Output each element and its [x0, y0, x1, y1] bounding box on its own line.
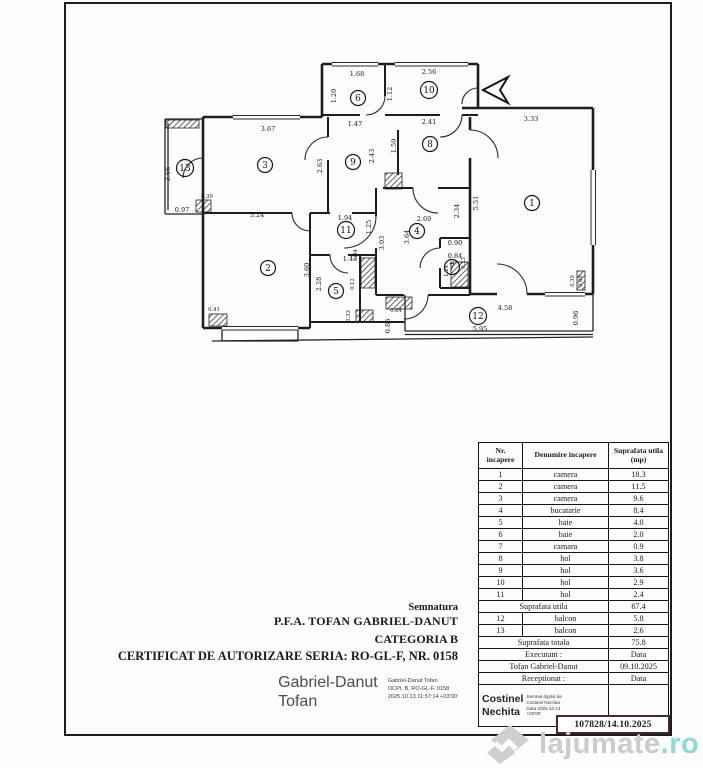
table-row: 5baie4.0 [479, 517, 669, 529]
subtotal-label: Suprafata utila [479, 601, 609, 613]
receiver-name: Costinel Nechita [482, 693, 523, 717]
col-header-denumire: Denumire incapere [523, 443, 609, 469]
cell-area: 8.4 [609, 505, 669, 517]
dimension-label: 0.97 [175, 206, 189, 214]
dimension-label: 3.33 [524, 115, 538, 123]
cell-name: hol [523, 553, 609, 565]
table-row: 2camera11.5 [479, 481, 669, 493]
room-number-label: 8 [427, 140, 433, 150]
room-number-label: 13 [179, 164, 191, 174]
executant-date: 09.10.2025 [609, 661, 669, 673]
digital-signature: Gabriel-Danut Tofan Gabriel-Danut Tofan … [78, 673, 458, 711]
dimension-label: 0.39 [570, 274, 576, 286]
room-number-label: 7 [449, 263, 455, 273]
cell-nr: 11 [479, 589, 523, 601]
cell-nr: 1 [479, 469, 523, 481]
stamp-detail-line: 2025.10.13 11:57:14 +03'00' [388, 693, 458, 701]
room-number-label: 6 [355, 94, 361, 104]
cell-area: 4.0 [609, 517, 669, 529]
dimension-label: 1.25 [365, 220, 373, 234]
dimension-label: 5.51 [472, 196, 480, 210]
room-number-label: 2 [265, 264, 271, 274]
dimension-label: 0.41 [208, 307, 220, 313]
dimension-label: 0.64 [390, 308, 402, 314]
dimension-label: 0.12 [350, 278, 356, 290]
cell-name: camera [523, 469, 609, 481]
col-header-suprafata: Suprafata utila (mp) [609, 443, 669, 469]
table-row: 3camera9.6 [479, 493, 669, 505]
table-row: 4bucatarie8.4 [479, 505, 669, 517]
stamp-detail-line: Gabriel-Danut Tofan [388, 677, 458, 685]
dimension-label: 0.86 [384, 319, 392, 333]
dimension-label: 1.12 [386, 87, 394, 101]
dimension-label: 1.24 [444, 264, 450, 276]
total-value: 75.8 [609, 637, 669, 649]
receptionat-data-label: Data [609, 673, 669, 685]
cell-name: baie [523, 529, 609, 541]
cell-nr: 3 [479, 493, 523, 505]
dimension-label: 1.20 [330, 89, 338, 103]
receiver-name-line1: Costinel [482, 693, 523, 705]
dimension-label: 3.64 [403, 230, 411, 244]
dimension-label: 2.34 [453, 204, 461, 218]
watermark-text: lajumate.ro [539, 730, 699, 759]
dimension-label: 2.66 [164, 167, 172, 181]
signer-name-line1: Gabriel-Danut [278, 673, 378, 692]
signer-name: Gabriel-Danut Tofan [278, 673, 378, 711]
cell-area: 2.0 [609, 529, 669, 541]
table-row: 12balcon5.8 [479, 613, 669, 625]
executant-row: Executant :Data [479, 649, 669, 661]
cell-area: 2.4 [609, 589, 669, 601]
col-header-suprafata-line2: (mp) [610, 456, 667, 465]
total-label: Suprafata totala [479, 637, 609, 649]
cell-nr: 13 [479, 625, 523, 637]
table-row: 11hol2.4 [479, 589, 669, 601]
executant-label: Executant : [479, 649, 609, 661]
dimension-label: 1.94 [338, 214, 352, 222]
cell-area: 0.9 [609, 541, 669, 553]
cell-nr: 8 [479, 553, 523, 565]
signature-label: Semnatura [78, 601, 458, 614]
cell-nr: 5 [479, 517, 523, 529]
cell-nr: 9 [479, 565, 523, 577]
dimension-label: 1.59 [390, 139, 398, 153]
dimension-label: 5.95 [473, 325, 487, 333]
executant-name: Tofan Gabriel-Danut [479, 661, 609, 673]
table-row: 6baie2.0 [479, 529, 669, 541]
cell-name: bucatarie [523, 505, 609, 517]
area-table: Nr. incapere Denumire incapere Suprafata… [478, 442, 669, 727]
cell-nr: 2 [479, 481, 523, 493]
dimension-label: 0.39 [201, 194, 213, 200]
cell-area: 9.6 [609, 493, 669, 505]
table-row: 1camera18.3 [479, 469, 669, 481]
room-number-label: 4 [414, 227, 420, 237]
executant-data-label: Data [609, 649, 669, 661]
cell-area: 5.8 [609, 613, 669, 625]
certificate-block: Semnatura P.F.A. TOFAN GABRIEL-DANUT CAT… [78, 601, 458, 711]
receptionat-label: Receptionat : [479, 673, 609, 685]
dimension-label: 1.47 [348, 120, 362, 128]
dimension-label: 0.23 [461, 257, 467, 269]
scanned-floorplan-page: 12345678910111213 1.682.561.201.122.411.… [0, 0, 703, 768]
lajumate-logo-icon [487, 723, 533, 765]
subtotal-value: 67.4 [609, 601, 669, 613]
room-number-label: 12 [472, 312, 483, 322]
cell-name: camera [523, 493, 609, 505]
cell-nr: 6 [479, 529, 523, 541]
dimension-label: 1.68 [350, 70, 364, 78]
receiver-stamp: Costinel Nechita Semnat digital de Costi… [480, 693, 607, 717]
total-row: Suprafata totala75.8 [479, 637, 669, 649]
subtotal-row: Suprafata utila67.4 [479, 601, 669, 613]
table-row: 9hol3.6 [479, 565, 669, 577]
certificate-number: CERTIFICAT DE AUTORIZARE SERIA: RO-GL-F,… [78, 649, 458, 665]
cell-area: 2.6 [609, 625, 669, 637]
dimension-label: 0.64 [353, 248, 359, 260]
col-header-nr-line2: incapere [480, 456, 521, 465]
dimension-label: 3.03 [378, 236, 386, 250]
signer-name-line2: Tofan [278, 692, 378, 711]
table-row: 7camara0.9 [479, 541, 669, 553]
dimension-label: 0.08 [578, 274, 584, 286]
table-row: 8hol3.8 [479, 553, 669, 565]
receiver-stamp-line: Costinel Nechita [526, 700, 562, 706]
cell-name: hol [523, 589, 609, 601]
cell-name: baie [523, 517, 609, 529]
cell-area: 3.8 [609, 553, 669, 565]
table-header-row: Nr. incapere Denumire incapere Suprafata… [479, 443, 669, 469]
room-number-label: 5 [333, 287, 339, 297]
cell-name: balcon [523, 625, 609, 637]
dimension-label: 2.41 [422, 118, 436, 126]
cell-name: hol [523, 565, 609, 577]
receptionat-row: Receptionat :Data [479, 673, 669, 685]
dimension-label: 3.67 [261, 125, 275, 133]
watermark-brand: lajumate [539, 728, 661, 760]
dimension-label: 3.24 [250, 211, 264, 219]
cell-nr: 10 [479, 577, 523, 589]
receiver-name-line2: Nechita [482, 706, 523, 718]
cell-nr: 4 [479, 505, 523, 517]
dimension-label: 3.60 [303, 263, 311, 277]
room-number-label: 3 [262, 161, 268, 171]
dimension-label: 0.96 [572, 311, 580, 325]
col-header-nr: Nr. incapere [479, 443, 523, 469]
room-number-label: 11 [340, 226, 351, 236]
windows [222, 63, 596, 331]
north-arrow-icon [483, 77, 508, 103]
authority-name: P.F.A. TOFAN GABRIEL-DANUT [78, 614, 458, 629]
dimension-label: 2.28 [315, 277, 323, 291]
dimension-label: 2.56 [422, 68, 436, 76]
receiver-stamp-details: Semnat digital de Costinel Nechita Data … [526, 694, 562, 718]
cell-area: 18.3 [609, 469, 669, 481]
dimension-label: 0.90 [448, 239, 462, 247]
cell-nr: 7 [479, 541, 523, 553]
watermark: lajumate.ro [487, 723, 699, 765]
table-row: 13balcon2.6 [479, 625, 669, 637]
receiver-stamp-line: Semnat digital de [526, 694, 562, 700]
table-row: 10hol2.9 [479, 577, 669, 589]
balcony-walls [165, 119, 593, 341]
room-number-label: 10 [423, 86, 435, 96]
cell-area: 2.9 [609, 577, 669, 589]
executant-name-row: Tofan Gabriel-Danut09.10.2025 [479, 661, 669, 673]
room-number-label: 1 [529, 199, 535, 209]
stamp-detail-line: OCPI, B, RO-GL-F, 0158 [388, 685, 458, 693]
cell-name: camera [523, 481, 609, 493]
signature-stamp-details: Gabriel-Danut Tofan OCPI, B, RO-GL-F, 01… [388, 673, 458, 701]
cell-nr: 12 [479, 613, 523, 625]
dimension-label: 2.69 [417, 215, 431, 223]
cell-area: 3.6 [609, 565, 669, 577]
dimension-label: 4.58 [498, 304, 512, 312]
watermark-tld: .ro [661, 728, 700, 760]
cell-name: camara [523, 541, 609, 553]
dimension-label: 2.43 [368, 149, 376, 163]
dimension-label: 0.33 [346, 310, 352, 322]
cell-area: 11.5 [609, 481, 669, 493]
dimension-label: 2.63 [316, 159, 324, 173]
cell-name: hol [523, 577, 609, 589]
inner-walls [203, 64, 478, 328]
room-number-label: 9 [350, 158, 356, 168]
category-label: CATEGORIA B [78, 632, 458, 647]
cell-name: balcon [523, 613, 609, 625]
